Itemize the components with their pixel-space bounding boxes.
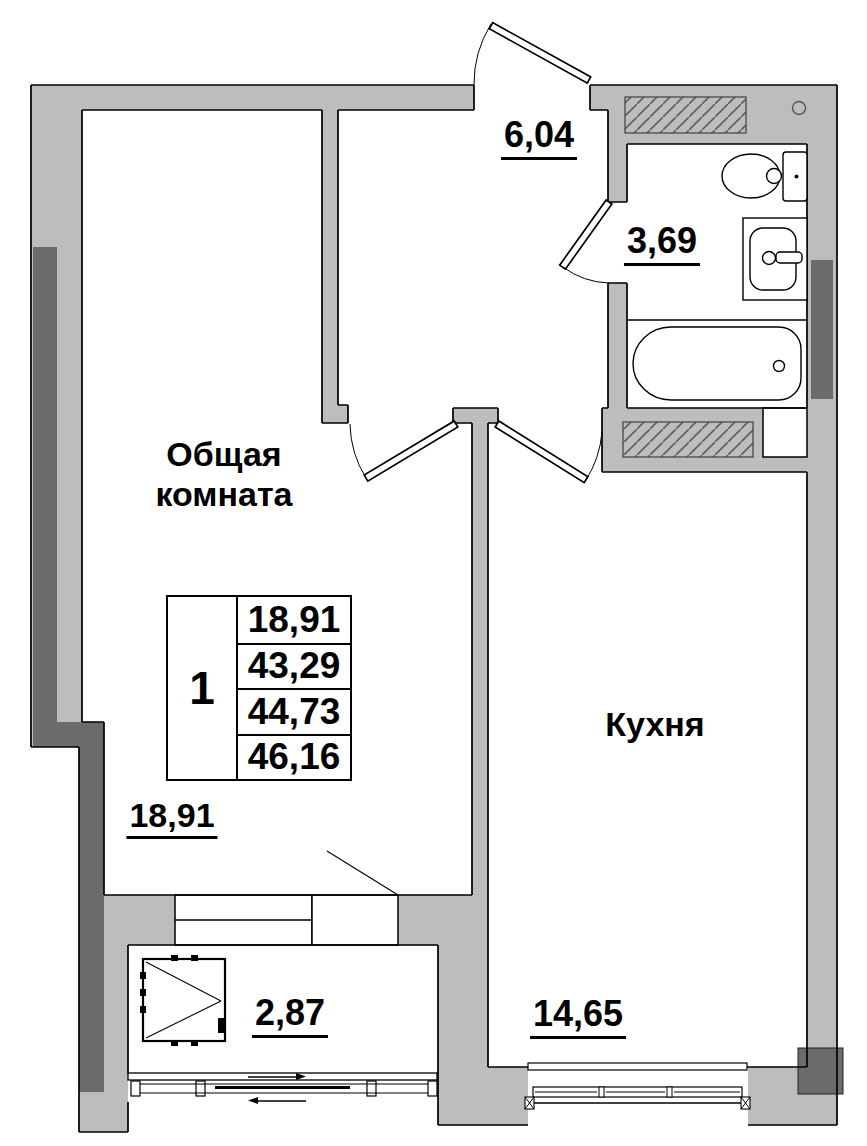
bathroom-door-leaf xyxy=(560,200,612,269)
table-row-area-2: 43,29 xyxy=(238,643,350,689)
kitchen-label: Кухня xyxy=(605,704,704,744)
balcony-door-window-unit xyxy=(175,895,398,945)
table-row-total-area: 46,16 xyxy=(238,734,350,780)
casement-window-icon xyxy=(140,955,225,1046)
entry-door-leaf xyxy=(489,23,590,83)
table-row-living-area: 18,91 xyxy=(238,597,350,643)
sink-icon xyxy=(743,218,807,300)
pillar-left-top xyxy=(33,247,57,722)
window-handle xyxy=(218,1018,224,1033)
living-room-label: Общая комната xyxy=(155,434,292,514)
living-room-door-swing-arc xyxy=(350,424,366,478)
living-room-area-label: 18,91 xyxy=(126,796,217,839)
living-room-door-leaf xyxy=(364,421,458,481)
balcony-area-label: 2,87 xyxy=(252,992,328,1038)
vent-shafts xyxy=(623,97,753,457)
balcony-sliding-window xyxy=(128,1073,437,1104)
floor-plan-drawing xyxy=(0,0,867,1146)
wall-niche xyxy=(763,408,807,457)
toilet-icon xyxy=(722,152,807,201)
balcony-door-block xyxy=(312,895,398,945)
hallway-area-label: 6,04 xyxy=(501,114,577,160)
bathroom-area-label: 3,69 xyxy=(624,220,700,266)
living-room-label-line2: комната xyxy=(155,474,292,514)
pillar-right-top xyxy=(811,260,833,399)
table-row-area-3: 44,73 xyxy=(238,688,350,734)
rooms-count-cell: 1 xyxy=(168,597,238,779)
pillar-left-bottom xyxy=(79,747,104,1092)
floor-plan: Общая комната Кухня 6,04 3,69 18,91 2,87… xyxy=(0,0,867,1146)
leader-line xyxy=(327,851,398,895)
vent-shaft-hatch-bottom xyxy=(623,422,753,457)
living-room-label-line1: Общая xyxy=(155,434,292,474)
vent-shaft-hatch-top xyxy=(625,97,746,133)
entry-door-swing-arc xyxy=(474,24,491,85)
apartment-info-table: 1 18,91 43,29 44,73 46,16 xyxy=(166,595,352,781)
bathroom-door-swing-arc xyxy=(563,267,609,283)
kitchen-door-swing-arc xyxy=(586,432,602,480)
kitchen-door-leaf xyxy=(495,421,588,483)
bathtub-icon xyxy=(633,327,801,400)
pillar-left-step xyxy=(33,722,104,747)
kitchen-area-label: 14,65 xyxy=(530,993,626,1039)
